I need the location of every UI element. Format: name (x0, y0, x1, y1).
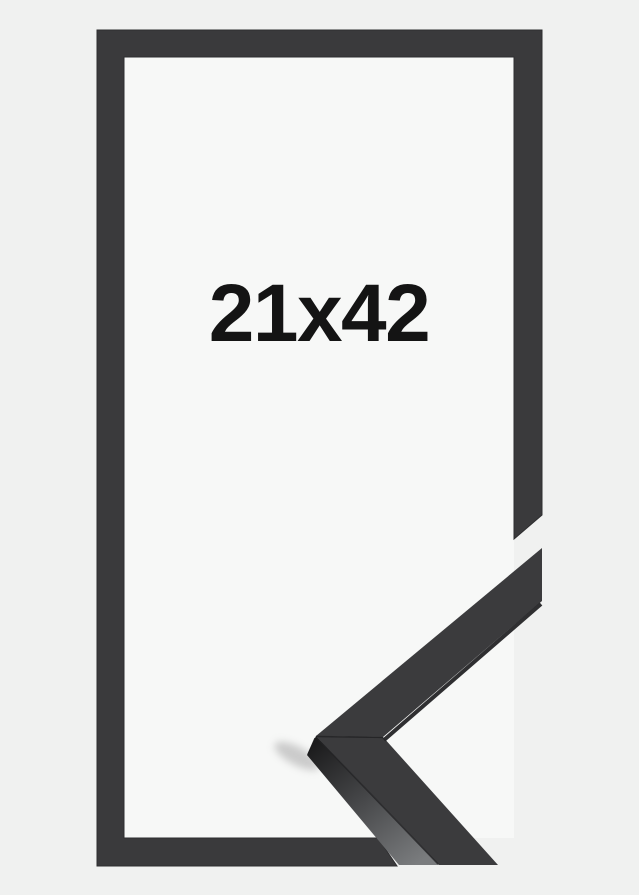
frame-product-graphic: 21x42 (0, 0, 639, 895)
frame-product-image: 21x42 (0, 0, 639, 895)
corner-miter-seam (316, 737, 383, 738)
frame-opening (124, 57, 514, 838)
frame-size-label: 21x42 (209, 268, 430, 359)
